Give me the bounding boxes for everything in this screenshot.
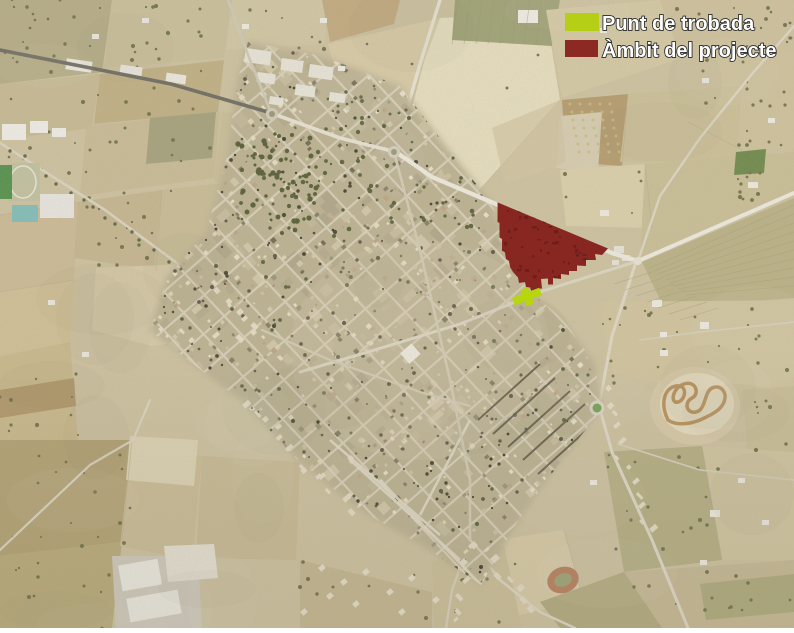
svg-text:Àmbit del projecte: Àmbit del projecte (602, 39, 776, 62)
svg-text:Punt de trobada: Punt de trobada (602, 13, 755, 35)
